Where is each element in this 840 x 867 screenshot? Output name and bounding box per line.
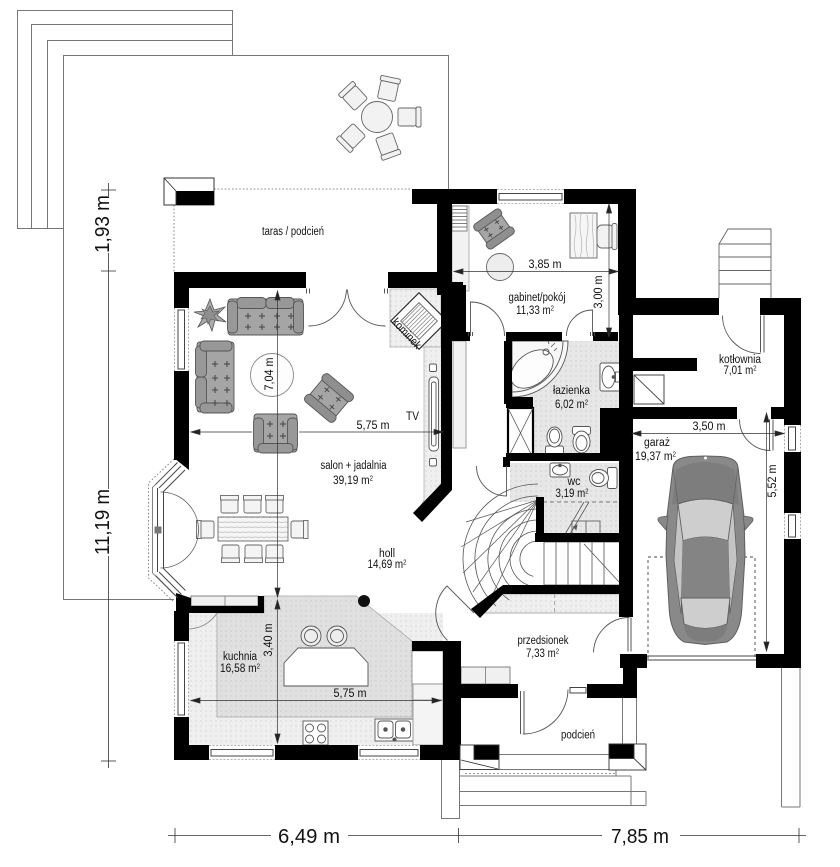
svg-text:6,49 m: 6,49 m bbox=[278, 826, 340, 848]
svg-text:3,19 m2: 3,19 m2 bbox=[556, 488, 589, 500]
svg-text:11,19 m: 11,19 m bbox=[92, 489, 114, 555]
svg-text:39,19 m2: 39,19 m2 bbox=[333, 475, 373, 487]
svg-text:7,33 m2: 7,33 m2 bbox=[526, 648, 559, 660]
svg-text:6,02 m2: 6,02 m2 bbox=[555, 399, 588, 411]
svg-text:19,37 m2: 19,37 m2 bbox=[635, 451, 676, 463]
svg-text:3,85 m: 3,85 m bbox=[529, 259, 562, 271]
svg-text:przedsionek: przedsionek bbox=[518, 635, 569, 647]
svg-text:TV: TV bbox=[406, 411, 419, 423]
svg-text:7,04 m: 7,04 m bbox=[264, 358, 276, 391]
svg-text:5,75 m: 5,75 m bbox=[357, 420, 390, 432]
svg-text:salon + jadalnia: salon + jadalnia bbox=[321, 460, 387, 472]
svg-text:3,50 m: 3,50 m bbox=[693, 421, 726, 433]
svg-text:11,33 m2: 11,33 m2 bbox=[516, 305, 554, 317]
svg-text:7,01 m2: 7,01 m2 bbox=[724, 365, 757, 377]
svg-text:14,69 m2: 14,69 m2 bbox=[368, 559, 407, 571]
svg-text:podcień: podcień bbox=[561, 730, 595, 742]
svg-text:1,93 m: 1,93 m bbox=[92, 195, 114, 253]
svg-text:5,75 m: 5,75 m bbox=[334, 688, 367, 700]
svg-text:taras / podcień: taras / podcień bbox=[262, 226, 324, 238]
svg-text:wc: wc bbox=[567, 476, 581, 488]
svg-text:garaż: garaż bbox=[644, 437, 670, 449]
svg-text:łazienka: łazienka bbox=[553, 385, 591, 397]
svg-text:7,85 m: 7,85 m bbox=[611, 826, 669, 848]
svg-text:5,52 m: 5,52 m bbox=[767, 465, 779, 498]
svg-text:3,00 m: 3,00 m bbox=[593, 276, 605, 309]
svg-text:3,40 m: 3,40 m bbox=[263, 624, 275, 657]
svg-text:kuchnia: kuchnia bbox=[223, 651, 258, 663]
svg-text:gabinet/pokój: gabinet/pokój bbox=[509, 292, 566, 304]
svg-text:16,58 m2: 16,58 m2 bbox=[220, 663, 260, 675]
